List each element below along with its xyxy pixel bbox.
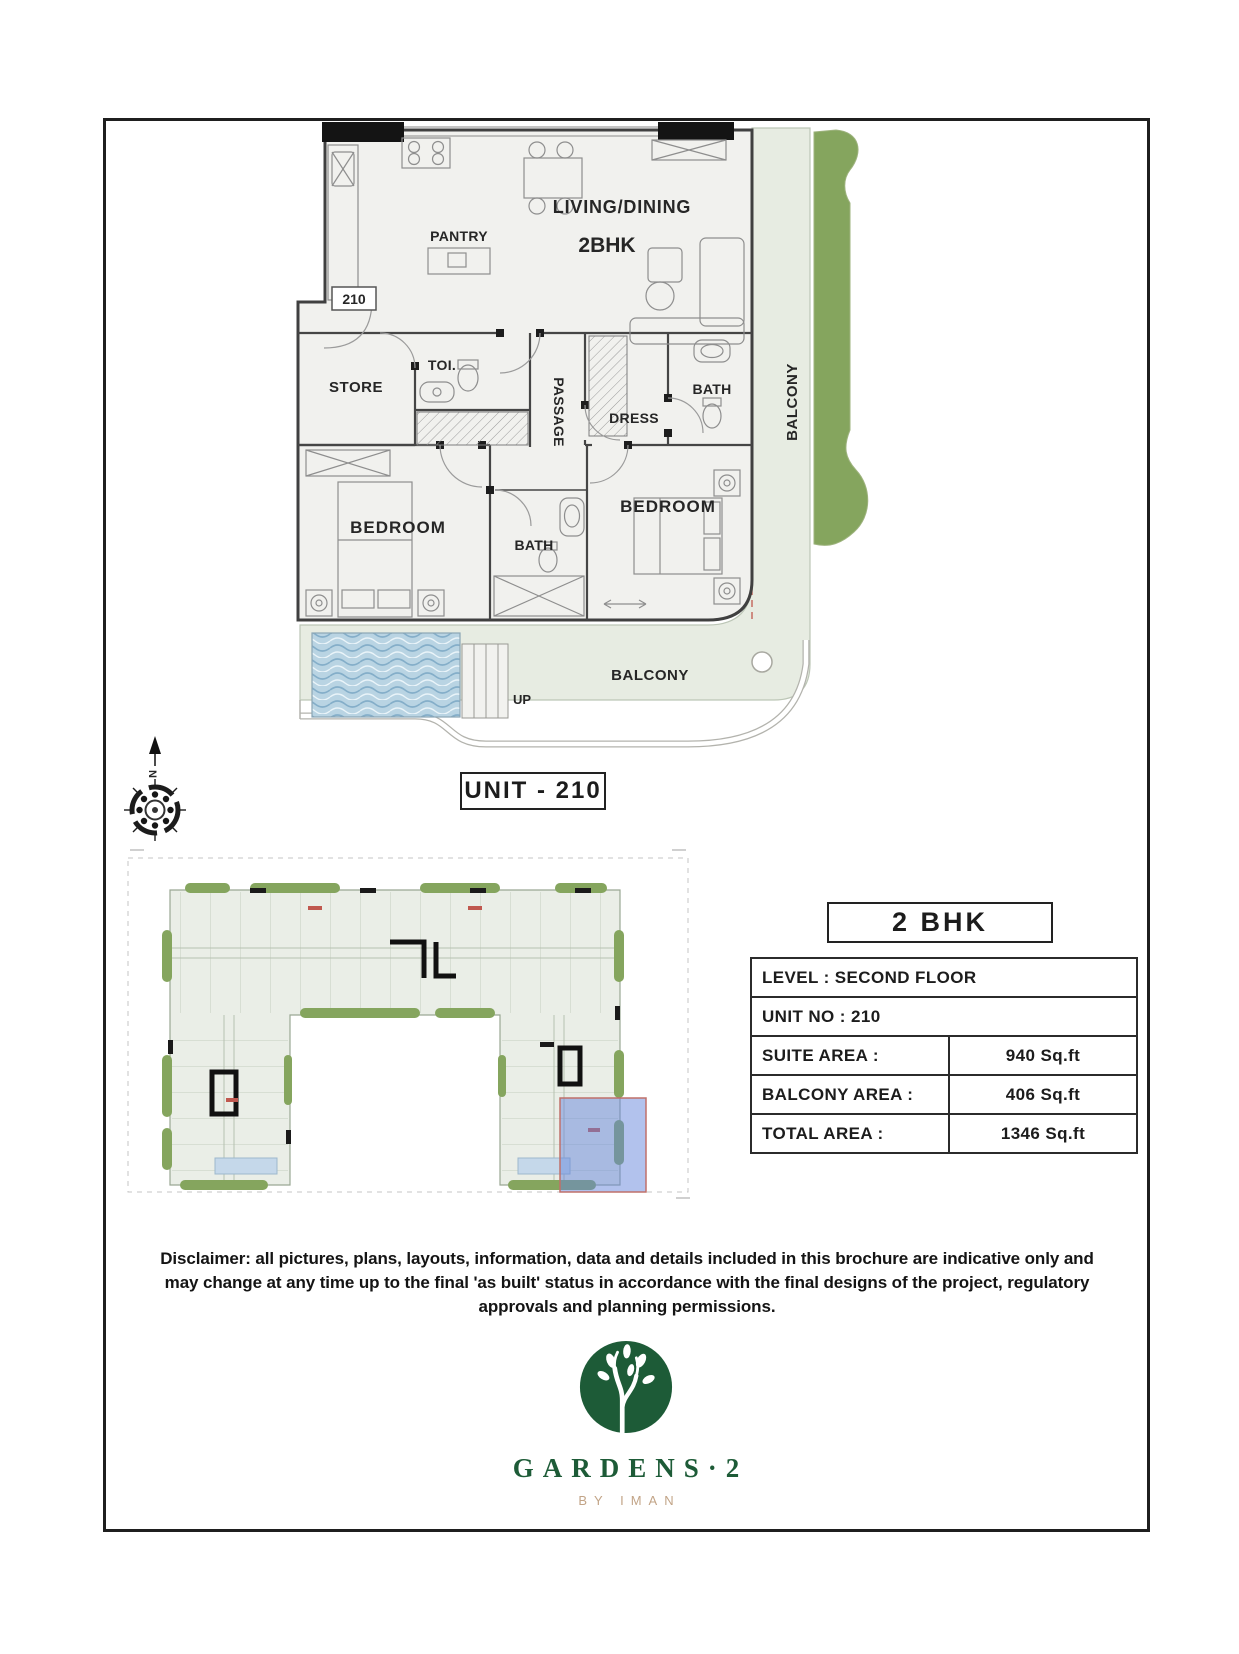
- stairs: [462, 644, 508, 718]
- pool: [312, 633, 460, 717]
- label-bedroom-left: BEDROOM: [350, 518, 446, 537]
- wall-block-left: [322, 122, 404, 142]
- suite-area-value: 940 Sq.ft: [950, 1037, 1136, 1074]
- brand-logo: GARDENS·2 BY IMAN: [426, 1340, 826, 1508]
- label-bath-mid: BATH: [514, 537, 553, 553]
- label-toilet: TOI.: [428, 357, 456, 373]
- label-unit-type: 2BHK: [578, 234, 635, 257]
- table-row-unit-no: UNIT NO : 210: [752, 996, 1136, 1035]
- label-up: UP: [513, 692, 531, 707]
- balcony-column: [752, 652, 772, 672]
- brand-name: GARDENS·2: [426, 1453, 826, 1484]
- floor-plan: LIVING/DINING 2BHK PANTRY 210 STORE TOI.…: [298, 122, 868, 744]
- label-bath-top: BATH: [692, 381, 731, 397]
- grass-strip: [814, 130, 868, 545]
- wall-block-right: [658, 122, 734, 140]
- label-balcony-bottom: BALCONY: [611, 667, 689, 684]
- label-bedroom-right: BEDROOM: [620, 497, 716, 516]
- brochure-page: LIVING/DINING 2BHK PANTRY 210 STORE TOI.…: [0, 0, 1239, 1654]
- compass-north-label: N: [146, 770, 158, 778]
- brand-byline: BY IMAN: [426, 1493, 826, 1508]
- table-row-total-area: TOTAL AREA : 1346 Sq.ft: [752, 1113, 1136, 1152]
- table-row-suite-area: SUITE AREA : 940 Sq.ft: [752, 1035, 1136, 1074]
- tree-logo-icon: [579, 1340, 673, 1434]
- table-row-balcony-area: BALCONY AREA : 406 Sq.ft: [752, 1074, 1136, 1113]
- label-living-dining: LIVING/DINING: [553, 197, 691, 217]
- label-passage: PASSAGE: [551, 377, 567, 447]
- unit-title-box: UNIT - 210: [460, 772, 606, 810]
- wardrobe-hatch: [417, 412, 528, 445]
- table-row-level: LEVEL : SECOND FLOOR: [752, 959, 1136, 996]
- disclaimer-text: Disclaimer: all pictures, plans, layouts…: [143, 1247, 1111, 1319]
- bhk-title: 2 BHK: [892, 907, 988, 938]
- total-area-value: 1346 Sq.ft: [950, 1115, 1136, 1152]
- key-plan: [128, 850, 690, 1198]
- key-plan-unit-highlight: [560, 1098, 646, 1192]
- label-dress: DRESS: [609, 410, 659, 426]
- label-unit-number: 210: [342, 291, 366, 307]
- bhk-title-box: 2 BHK: [827, 902, 1053, 943]
- balcony-area-label: BALCONY AREA :: [752, 1076, 950, 1113]
- balcony-area-value: 406 Sq.ft: [950, 1076, 1136, 1113]
- unit-details-table: LEVEL : SECOND FLOOR UNIT NO : 210 SUITE…: [750, 957, 1138, 1154]
- label-balcony-right: BALCONY: [784, 363, 801, 441]
- label-store: STORE: [329, 379, 383, 396]
- label-pantry: PANTRY: [430, 228, 488, 244]
- suite-area-label: SUITE AREA :: [752, 1037, 950, 1074]
- compass-icon: N: [124, 736, 186, 841]
- total-area-label: TOTAL AREA :: [752, 1115, 950, 1152]
- unit-title: UNIT - 210: [464, 777, 601, 805]
